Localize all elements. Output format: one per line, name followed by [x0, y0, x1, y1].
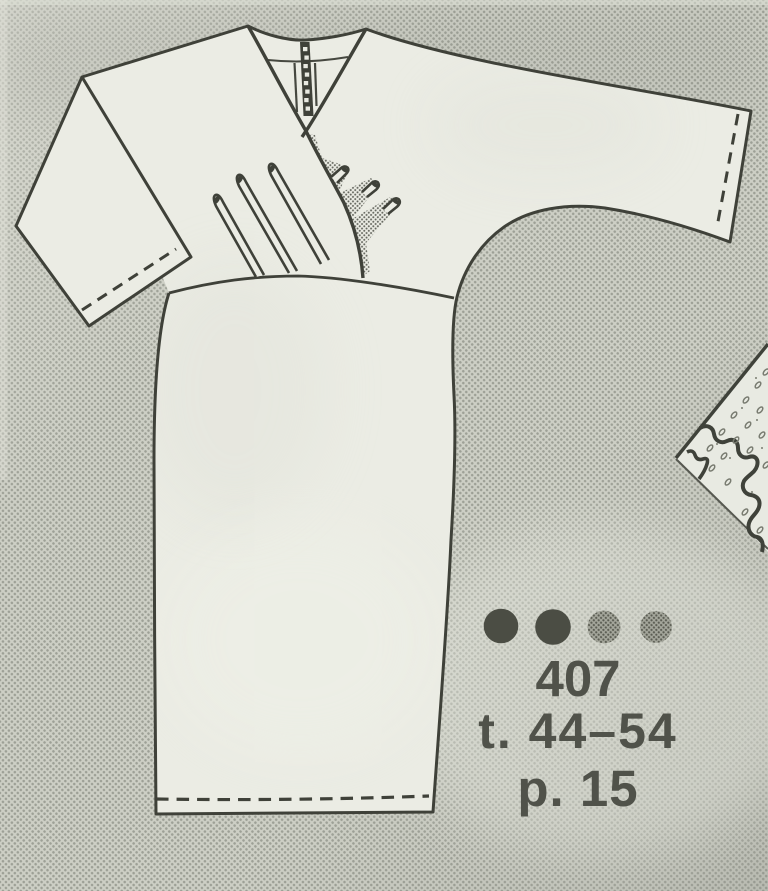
svg-text:p. 15: p. 15 — [517, 760, 638, 817]
svg-text:407: 407 — [535, 650, 620, 707]
svg-text:t. 44–54: t. 44–54 — [478, 703, 677, 759]
